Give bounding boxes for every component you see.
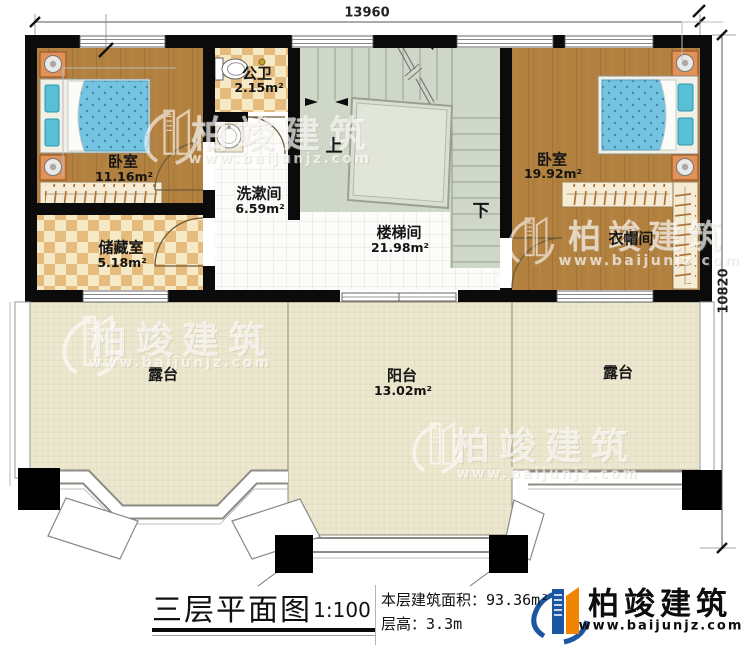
- window: [557, 291, 653, 302]
- floor-height-row: 层高：3.3m: [381, 613, 462, 634]
- window: [292, 36, 373, 47]
- watermark-url: www.baijunjz.com: [189, 151, 372, 167]
- watermark-url: www.baijunjz.com: [457, 466, 640, 482]
- stair-up-label: 上: [326, 139, 343, 156]
- plan-title: 三层平面图: [152, 585, 312, 629]
- window: [83, 291, 168, 302]
- plan-scale: 1:100: [313, 598, 371, 622]
- wardrobe: [562, 182, 674, 207]
- balcony-door: [342, 293, 456, 301]
- bed: [40, 79, 150, 153]
- room-label-stairwell: 楼梯间: [376, 226, 421, 241]
- bed: [598, 76, 698, 154]
- window: [80, 36, 165, 47]
- room-label-balcony: 阳台: [387, 369, 417, 384]
- window: [565, 36, 653, 47]
- brand-website: www.baijunjz.com: [579, 619, 744, 634]
- nightstand: [672, 51, 698, 76]
- window: [457, 36, 553, 47]
- room-label-cloakroom: 衣帽间: [608, 232, 653, 247]
- room-area-washroom: 6.59m²: [235, 203, 284, 216]
- watermark-url: www.baijunjz.com: [89, 355, 272, 371]
- room-label-bedroom-left: 卧室: [108, 155, 138, 170]
- railing-left: [15, 302, 30, 478]
- room-area-stairwell: 21.98m²: [371, 242, 429, 255]
- room-area-balcony: 13.02m²: [374, 385, 432, 398]
- brand-name: 柏竣建筑: [588, 579, 732, 624]
- watermark-url: www.baijunjz.com: [559, 253, 742, 269]
- watermark-text: 柏竣建筑: [453, 416, 637, 470]
- title-divider: [375, 585, 376, 645]
- floor-height-label: 层高：: [381, 615, 426, 633]
- room-label-washroom: 洗漱间: [236, 187, 281, 202]
- railing-right: [700, 302, 714, 478]
- room-area-bathroom: 2.15m²: [234, 82, 283, 95]
- floor-area-row: 本层建筑面积：93.36m²: [381, 589, 549, 610]
- title-underline-thin: [152, 635, 375, 636]
- room-label-terrace-right: 露台: [603, 366, 633, 381]
- room-area-storage: 5.18m²: [97, 257, 146, 270]
- floor-area-label: 本层建筑面积：: [381, 591, 486, 609]
- room-area-bedroom-right: 19.92m²: [524, 168, 582, 181]
- floor-height-value: 3.3m: [426, 615, 462, 633]
- room-label-terrace-left: 露台: [148, 368, 178, 383]
- nightstand: [672, 155, 698, 180]
- room-label-storage: 储藏室: [98, 241, 143, 256]
- nightstand: [40, 155, 66, 180]
- stair-down-label: 下: [473, 204, 490, 221]
- title-underline: [152, 628, 375, 632]
- room-area-bedroom-left: 11.16m²: [95, 171, 153, 184]
- nightstand: [40, 52, 66, 77]
- floor-area-value: 93.36m²: [486, 591, 549, 609]
- dimension-width-label: 13960: [344, 6, 389, 21]
- watermark-text: 柏竣建筑: [191, 104, 375, 158]
- floor-plan-canvas: 13960 10820 柏竣建筑 www.baijunjz.com 柏竣建筑 w…: [0, 0, 750, 649]
- dimension-height-label: 10820: [717, 268, 732, 313]
